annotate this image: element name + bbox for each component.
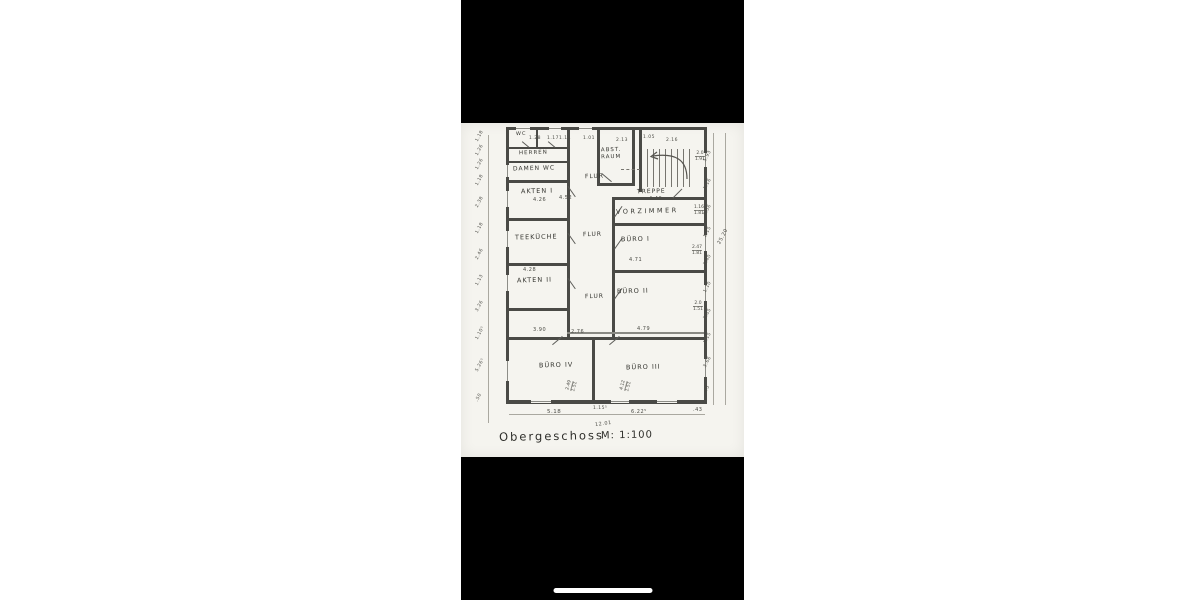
stair-landing-line [621, 169, 640, 170]
wall-segment [509, 308, 568, 311]
room-label-buero3: BÜRO III [626, 363, 661, 372]
dim-top-3: 1.01 [583, 136, 595, 141]
screenshot-canvas: WC HERREN DAMEN WC AKTEN I TEEKÜCHE AKTE… [0, 0, 1200, 600]
room-label-teekueche: TEEKÜCHE [515, 232, 558, 241]
wall-segment [612, 270, 704, 273]
room-label-akten1: AKTEN I [521, 187, 553, 196]
dim-top-5: 1.05 [643, 135, 655, 140]
dim-pair-bottom: 1.81 [694, 210, 704, 216]
dim-top-0: 1.28 [529, 136, 541, 141]
stair-direction-arrow [641, 145, 693, 185]
room-label-buero4: BÜRO IV [539, 361, 573, 370]
window-marker [506, 231, 509, 247]
floorplan-scan: WC HERREN DAMEN WC AKTEN I TEEKÜCHE AKTE… [461, 123, 744, 457]
window-marker [531, 400, 551, 403]
dim-top-4: 2.13 [616, 138, 628, 143]
dim-vorzimmer-width: 4.46 [649, 196, 662, 202]
room-label-flur-3: FLUR [585, 293, 604, 300]
dim-bottom-e: .43 [693, 407, 702, 413]
wall-segment [567, 332, 704, 334]
dim-pair-top: 2.0 [695, 151, 705, 156]
room-label-flur-1: FLUR [585, 173, 604, 180]
wall-segment [632, 130, 635, 185]
dim-top-2: 1.14 [559, 136, 571, 141]
wall-segment [509, 218, 568, 221]
dim-right-total: 25.20 [716, 228, 729, 246]
window-marker [549, 127, 561, 130]
wall-segment [509, 147, 568, 149]
letterbox-bottom [461, 457, 744, 600]
home-indicator[interactable] [553, 588, 652, 593]
window-marker [657, 400, 677, 403]
dimension-line-right-outer [725, 133, 726, 405]
dim-flur-width: 4.52 [559, 195, 572, 201]
dim-left-6: 2.46 [475, 248, 485, 261]
wall-segment [509, 180, 568, 183]
wall-segment [597, 183, 635, 186]
dim-pair-0: 2.0 1.91 [695, 151, 705, 163]
room-label-damen-wc: DAMEN WC [513, 164, 555, 172]
plan-scale: M: 1:100 [601, 430, 653, 442]
room-label-buero2: BÜRO II [617, 287, 649, 296]
dim-buero1-width: 4.71 [629, 257, 642, 263]
letterbox-top [461, 0, 744, 123]
dim-left-5: 1.18 [475, 222, 485, 235]
dim-bottom-c: 12.01 [595, 420, 612, 428]
dim-pair-2: 2.47 1.81 [692, 245, 702, 257]
room-label-herren: HERREN [519, 150, 548, 157]
dim-left-11: .50 [475, 393, 483, 403]
room-label-akten2: AKTEN II [517, 276, 552, 285]
room-label-vorzimmer: VORZIMMER [616, 206, 679, 216]
dim-pair-3: 2.0 1.51 [693, 301, 703, 313]
dim-bottom-b: 1.15⁵ [593, 406, 607, 411]
dim-left-2: 1.26 [475, 158, 485, 171]
wall-segment [592, 340, 595, 400]
dim-pair-bottom: 1.51 [693, 306, 703, 312]
dim-left-1: 1.26 [475, 144, 485, 157]
room-label-flur-2: FLUR [583, 231, 602, 238]
wall-segment [612, 223, 704, 226]
dim-buero2-width: 4.79 [637, 326, 650, 332]
wall-segment [509, 161, 568, 163]
dim-bottom-a: 5.18 [547, 409, 561, 415]
dim-left-3: 1.18 [475, 174, 485, 187]
wall-segment [612, 197, 615, 339]
phone-image-viewer: WC HERREN DAMEN WC AKTEN I TEEKÜCHE AKTE… [461, 0, 744, 600]
dim-buero4-width: 3.90 [533, 327, 546, 333]
dimension-line-bottom [509, 414, 705, 415]
window-marker [506, 275, 509, 291]
plan-title: Obergeschoss [499, 428, 604, 444]
dim-left-9: 1.10⁵ [475, 326, 486, 341]
dim-pair-top: 2.47 [692, 245, 702, 250]
window-marker [506, 191, 509, 207]
dim-pair-top: 1.16 [694, 205, 704, 210]
dim-pair-5: 4.12 1.51 [619, 380, 633, 393]
dim-akten2-width: 4.28 [523, 267, 536, 273]
room-label-wc: WC [516, 131, 527, 137]
dim-left-0: 1.18 [475, 130, 485, 143]
dim-left-7: 1.13 [475, 274, 485, 287]
wall-segment [509, 263, 568, 266]
wall-segment [509, 337, 704, 340]
dim-bottom-d: 6.22⁵ [631, 409, 647, 415]
window-marker [516, 127, 530, 130]
room-label-buero1: BÜRO I [621, 235, 650, 244]
dim-pair-4: 2.49 1.51 [565, 380, 579, 393]
window-marker [506, 361, 509, 381]
dim-akten1-width: 4.26 [533, 197, 546, 203]
dim-top-6: 2.16 [666, 138, 678, 143]
dim-pair-top: 2.0 [693, 301, 703, 306]
window-marker [611, 400, 629, 403]
dim-left-4: 2.38 [475, 196, 485, 209]
dim-corridor-width: 2.76 [571, 329, 584, 335]
dim-pair-bottom: 1.91 [695, 156, 705, 162]
dim-top-1: 1.17 [547, 136, 559, 141]
dimension-line-right-inner [713, 133, 714, 405]
room-label-treppe: TREPPE [637, 188, 666, 196]
dim-left-10: 5.26⁵ [475, 358, 486, 373]
window-marker [506, 165, 509, 177]
dimension-line-left [488, 135, 489, 423]
dim-left-8: 3.26 [475, 300, 485, 313]
room-label-abstellraum: ABST. RAUM [601, 147, 627, 161]
window-marker [579, 127, 592, 130]
dim-pair-1: 1.16 1.81 [694, 205, 704, 217]
dim-pair-bottom: 1.81 [692, 250, 702, 256]
